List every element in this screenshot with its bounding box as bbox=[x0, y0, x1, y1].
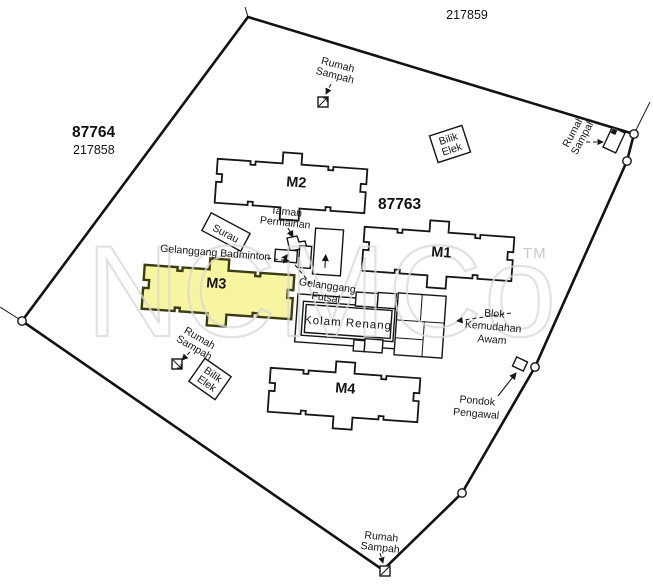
site-plan-svg: NCMCo TM 217859 87764 217858 87763 M2 M1… bbox=[0, 0, 653, 585]
rumah-sampah-pointer-top bbox=[326, 84, 331, 94]
svg-text:Blok: Blok bbox=[484, 307, 506, 321]
rumah-sampah-icon-top bbox=[318, 97, 328, 107]
building-label-m1: M1 bbox=[431, 244, 452, 261]
rumah-sampah-label-right: Rumah Sampah bbox=[559, 111, 598, 156]
rumah-sampah-label-top: Rumah Sampah bbox=[314, 54, 358, 86]
rumah-sampah-icon-bottom bbox=[380, 566, 390, 576]
rumah-sampah-label-bottom: Rumah Sampah bbox=[360, 529, 401, 556]
pondok-pengawal-pointer bbox=[498, 373, 516, 396]
building-label-m2: M2 bbox=[286, 174, 307, 191]
boundary-marker-pondok bbox=[531, 363, 539, 371]
rumah-sampah-hut-right bbox=[603, 127, 625, 153]
boundary-marker-right-top bbox=[630, 130, 638, 138]
lot-number-217858: 217858 bbox=[73, 143, 115, 157]
watermark-tm: TM bbox=[523, 245, 547, 262]
site-plan-page: NCMCo TM 217859 87764 217858 87763 M2 M1… bbox=[0, 0, 653, 585]
lot-number-217859: 217859 bbox=[446, 8, 488, 22]
lot-number-87763: 87763 bbox=[378, 196, 421, 213]
building-label-m3: M3 bbox=[206, 275, 227, 292]
building-label-m4: M4 bbox=[335, 380, 356, 397]
boundary-tick-top bbox=[245, 7, 248, 17]
boundary-marker-lower-right bbox=[458, 489, 466, 497]
rumah-sampah-pointer-bottom bbox=[380, 553, 383, 563]
pondok-pengawal-label: Pondok Pengawal bbox=[453, 393, 501, 422]
boundary-extension-right bbox=[634, 102, 650, 134]
lot-number-87764: 87764 bbox=[72, 124, 115, 141]
boundary-marker-left bbox=[18, 317, 26, 325]
svg-text:Awam: Awam bbox=[477, 333, 507, 348]
boundary-marker-right bbox=[623, 157, 631, 165]
